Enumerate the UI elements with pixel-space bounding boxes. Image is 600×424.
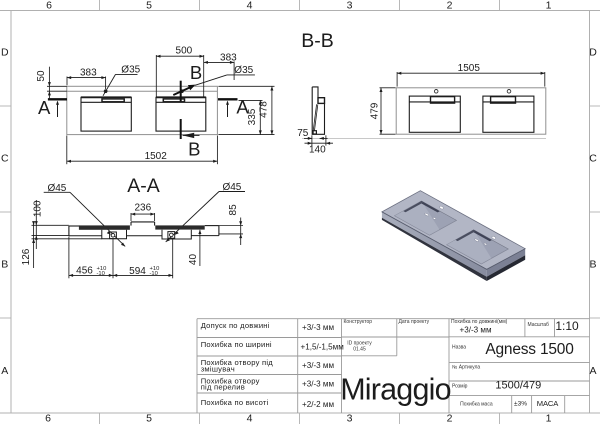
svg-text:B: B [589,259,596,271]
svg-text:01.45: 01.45 [353,347,366,353]
svg-text:1500/479: 1500/479 [495,380,541,392]
svg-text:85: 85 [228,204,239,216]
svg-text:126: 126 [21,248,32,265]
svg-text:A-A: A-A [127,175,160,197]
svg-text:№ Артикула: № Артикула [452,365,480,371]
svg-text:Дата проекту: Дата проекту [399,319,430,325]
svg-text:2: 2 [447,0,453,12]
svg-text:D: D [1,47,9,59]
svg-text:під перелив: під перелив [201,383,245,392]
svg-text:+3/-3 мм: +3/-3 мм [302,361,334,370]
svg-text:+3/-3 мм: +3/-3 мм [459,326,491,335]
svg-text:6: 6 [45,413,51,424]
svg-text:C: C [1,153,9,165]
svg-text:6: 6 [46,0,52,12]
svg-text:+2/-2 мм: +2/-2 мм [302,400,334,409]
svg-text:456: 456 [76,266,93,277]
svg-text:Ø35: Ø35 [121,65,140,76]
svg-text:479: 479 [370,102,381,119]
svg-text:Назва: Назва [452,345,466,351]
svg-text:Конструктор: Конструктор [344,319,373,325]
svg-text:A: A [38,97,51,118]
svg-text:Масштаб: Масштаб [527,322,549,328]
svg-text:500: 500 [176,46,193,57]
svg-text:-10: -10 [97,271,105,277]
svg-text:A: A [589,365,596,377]
svg-text:D: D [589,47,597,59]
svg-text:A: A [1,365,8,377]
svg-text:1:10: 1:10 [555,319,579,333]
svg-text:1: 1 [546,0,552,12]
svg-text:1502: 1502 [145,151,168,162]
svg-text:236: 236 [134,202,151,213]
svg-text:Похибка по висоті: Похибка по висоті [201,398,269,407]
svg-text:Похибка по ширині: Похибка по ширині [201,340,272,349]
svg-text:МАСА: МАСА [537,399,560,408]
svg-text:140: 140 [309,145,326,156]
svg-text:B: B [1,259,8,271]
svg-text:5: 5 [146,413,152,424]
svg-text:Agness 1500: Agness 1500 [485,341,574,358]
svg-text:B: B [190,62,202,83]
svg-text:C: C [589,153,597,165]
svg-text:100: 100 [33,200,44,217]
svg-text:75: 75 [297,128,309,139]
svg-text:Похибка по довжині(мм): Похибка по довжині(мм) [451,319,508,325]
svg-text:4: 4 [247,0,253,12]
svg-text:B: B [188,138,200,159]
svg-text:Похибка маса: Похибка маса [460,401,493,407]
svg-text:4: 4 [247,413,253,424]
svg-text:383: 383 [220,52,237,63]
svg-text:335: 335 [247,108,258,125]
svg-text:Допуск по довжині: Допуск по довжині [201,321,270,330]
svg-text:±3%: ±3% [514,401,527,408]
svg-text:3: 3 [347,413,353,424]
svg-text:478: 478 [258,101,269,118]
svg-text:2: 2 [447,413,453,424]
svg-text:Miraggio: Miraggio [340,373,451,407]
svg-text:1505: 1505 [458,63,481,74]
svg-text:3: 3 [347,0,353,12]
svg-text:Розмір: Розмір [452,384,468,390]
svg-text:+3/-3 мм: +3/-3 мм [302,323,334,332]
svg-text:50: 50 [36,70,47,82]
svg-text:594: 594 [129,266,146,277]
svg-text:1: 1 [546,413,552,424]
svg-text:383: 383 [80,68,97,79]
svg-text:+1,5/-1,5мм: +1,5/-1,5мм [301,343,344,352]
svg-text:40: 40 [188,254,199,266]
svg-text:Ø35: Ø35 [234,65,253,76]
svg-text:5: 5 [146,0,152,12]
svg-text:змішувач: змішувач [201,365,235,374]
svg-text:-10: -10 [150,271,158,277]
svg-text:B-B: B-B [301,30,334,52]
svg-text:+3/-3 мм: +3/-3 мм [302,380,334,389]
